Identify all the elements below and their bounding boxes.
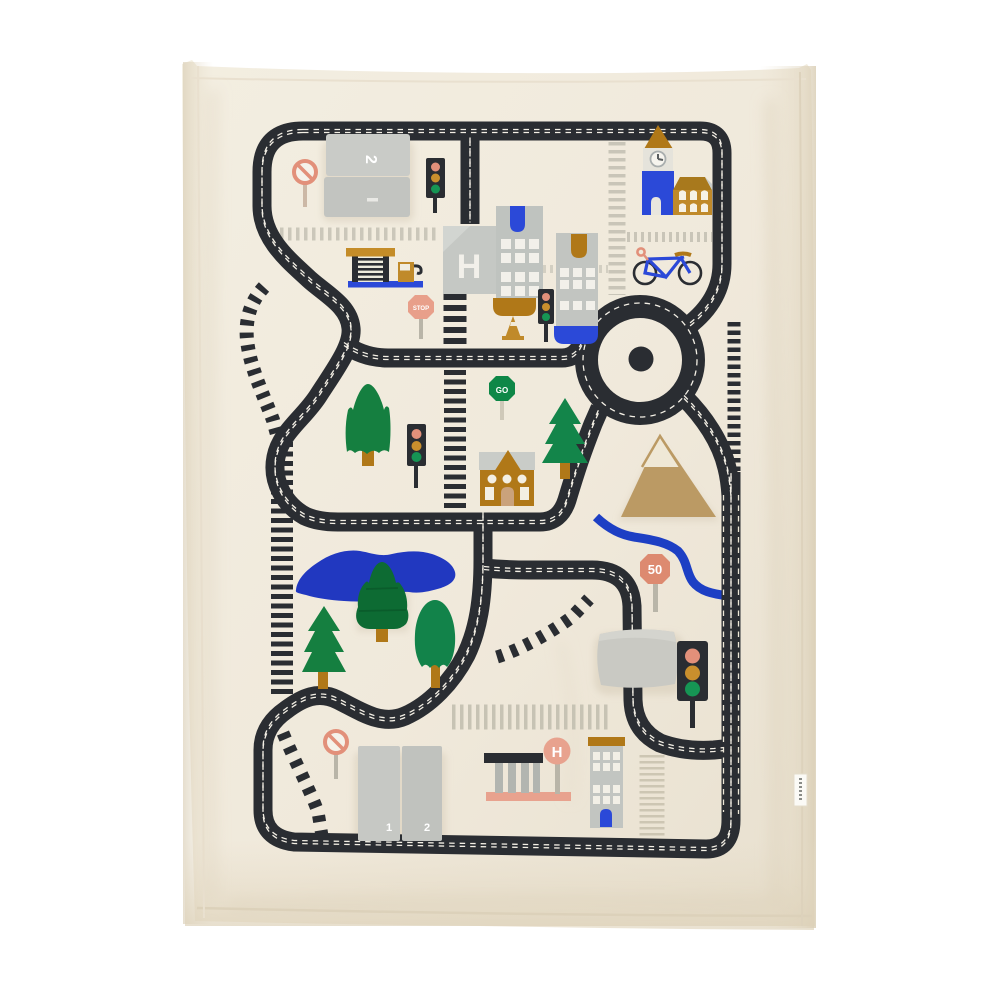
svg-text:2: 2 [424,822,430,834]
svg-text:1: 1 [386,822,392,834]
svg-text:H: H [552,744,563,761]
svg-text:H: H [457,248,482,286]
svg-text:2: 2 [362,155,379,164]
svg-text:GO: GO [496,386,508,395]
svg-text:STOP: STOP [413,306,429,312]
svg-text:50: 50 [648,562,662,577]
